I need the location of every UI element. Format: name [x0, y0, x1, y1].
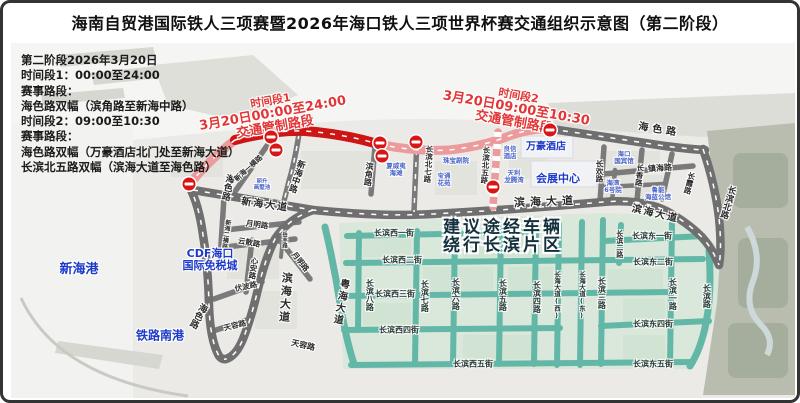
landmark-label: 天利龙腾湾 — [504, 170, 524, 184]
street-label: 长滨五路 — [498, 279, 507, 311]
info-line: 时间段2：09:00至10:30 — [21, 114, 240, 129]
road-label: 长香路 — [634, 163, 644, 186]
road-label: 海色路 — [637, 122, 680, 139]
road-label: 云散路 — [237, 237, 261, 249]
no-entry-icon — [183, 178, 196, 191]
street-label: 长滨六路 — [451, 278, 460, 310]
street-label: 长滨八路 — [365, 279, 374, 311]
road-label: 月明路 — [245, 219, 268, 230]
no-entry-icon — [376, 150, 389, 163]
street-label: 长滨东五街 — [633, 361, 673, 370]
info-line: 第二阶段2026年3月20日 — [21, 53, 240, 68]
road-label: 滨海大道 — [514, 195, 578, 209]
no-entry-icon — [544, 124, 557, 137]
road-label: 天容路 — [290, 339, 315, 353]
road-label: 滨海大道 — [630, 204, 679, 225]
info-line: 时间段1：00:00至24:00 — [21, 68, 240, 83]
street-label: 长海大道(西) — [552, 271, 559, 320]
street-label: 长滨西五街 — [453, 361, 493, 370]
road-label: 岳丰路 — [280, 232, 286, 249]
landmark-label: 丽升画墅池 — [254, 180, 271, 192]
no-entry-icon — [265, 131, 278, 144]
no-entry-icon — [487, 181, 500, 194]
road-label: 伏波路 — [234, 281, 258, 294]
info-line: 海色路双幅（万豪酒店北门处至新海大道） — [21, 145, 240, 160]
landmark-label: 良信酒店 — [504, 146, 517, 160]
road-label: 滨角路 — [362, 162, 373, 187]
landmark-label: 珠宝剧院 — [443, 157, 469, 164]
landmark-label: 海湾6号院 — [604, 180, 622, 194]
page-title: 海南自贸港国际铁人三项赛暨2026年海口铁人三项世界杯赛交通组织示意图（第二阶段… — [3, 10, 797, 34]
street-label: 长滨西四街 — [379, 327, 419, 336]
road-label: 粤海大道 — [330, 277, 349, 326]
landmark-label: 会展中心 — [536, 173, 580, 185]
road-label: 长滨二路 — [615, 230, 623, 258]
info-line: 赛事路段： — [21, 129, 240, 144]
road-label: 心安路 — [247, 256, 258, 279]
road-label: 月明路 — [290, 251, 310, 274]
street-label: 长滨路 — [702, 284, 711, 308]
road-label: 长霞路 — [682, 171, 695, 195]
road-label: 海色路 — [218, 173, 233, 201]
road-label: 新海大道 — [240, 197, 289, 214]
traffic-map-poster: 海色路海色路海色路新海大道新海中路新海一横路新海二横路滨角路月明路云散路心安路伏… — [0, 0, 800, 403]
no-entry-icon — [410, 136, 423, 149]
traffic-control-label: 时间段23月20日09:00至10:30交通管制路段 — [439, 77, 593, 142]
road-label: 长滨北七路 — [423, 145, 434, 183]
street-label: 长滨西一街 — [374, 230, 414, 239]
street-label: 长滨东一街 — [632, 233, 672, 242]
info-line: 海色路双幅（滨角路至新海中路） — [21, 99, 240, 114]
street-label: 长滨西二街 — [382, 257, 422, 266]
landmark-label: 夏威夷海滩 — [386, 163, 406, 177]
info-line: 长滨北五路双幅（滨海大道至海色路） — [21, 160, 240, 175]
no-entry-icon — [374, 137, 387, 150]
road-label: 长滨北五路 — [480, 146, 491, 184]
road-label: 滨海大道 — [277, 272, 292, 325]
info-panel: 第二阶段2026年3月20日 时间段1：00:00至24:00 赛事路段： 海色… — [21, 53, 240, 175]
landmark-label: 铁路南港 — [136, 330, 184, 343]
road-label: 长欢路 — [595, 160, 603, 183]
road-label: 海色路 — [186, 301, 207, 329]
detour-advisory-label: 建议途经车辆绕行长滨片区 — [443, 219, 563, 256]
landmark-label: 海口国宾馆 — [614, 151, 634, 165]
street-label: 长滨西三街 — [375, 291, 415, 300]
road-label: 天容路 — [223, 319, 247, 332]
road-label: 新海二横路 — [220, 219, 231, 250]
landmark-label: 鲁能海蓝公馆 — [645, 187, 671, 201]
road-label: 镇海路 — [648, 164, 673, 174]
street-label: 长海大道(东) — [577, 271, 584, 320]
no-entry-icon — [270, 144, 283, 157]
street-label: 长滨三路 — [597, 277, 606, 309]
landmark-label: 万豪酒店 — [526, 143, 566, 154]
landmark-label: 宝通花苑 — [438, 173, 451, 187]
street-label: 长滨四路 — [532, 281, 541, 313]
road-label: 新海中路 — [286, 158, 305, 193]
street-label: 长滨东二街 — [633, 259, 673, 268]
info-line: 赛事路段： — [21, 84, 240, 99]
street-label: 长滨一路 — [668, 278, 677, 310]
street-label: 长滨七路 — [420, 280, 429, 312]
street-label: 长滨东四街 — [633, 321, 673, 330]
landmark-label: 新海港 — [59, 263, 98, 277]
landmark-label: CDF海口国际免税城 — [183, 248, 238, 272]
road-label: 长滨北路 — [718, 184, 736, 219]
